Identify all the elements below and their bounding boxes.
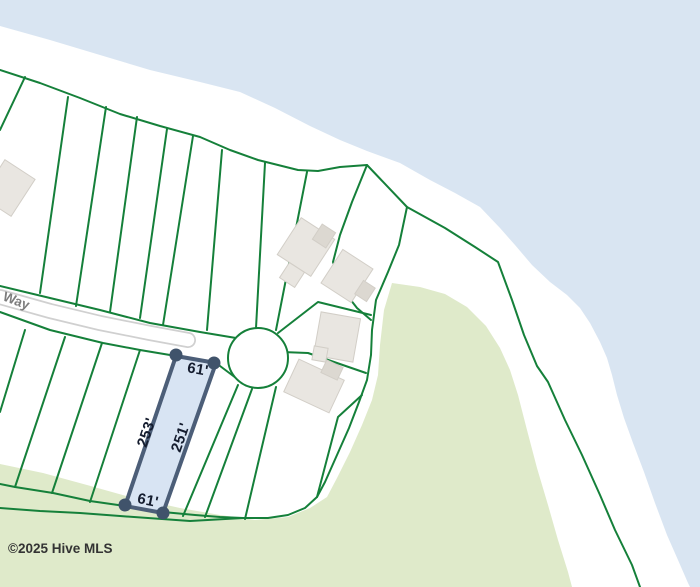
lot-line: [15, 337, 65, 487]
lot-corner-marker: [157, 507, 170, 520]
building-footprint: [0, 160, 35, 217]
lot-line: [0, 330, 25, 412]
lot-line: [110, 117, 137, 312]
lot-line: [140, 129, 167, 318]
lot-line: [76, 107, 106, 306]
lot-line: [0, 77, 25, 130]
lot-line: [256, 163, 265, 328]
lot-line: [52, 343, 102, 493]
cul-de-sac-circle: [228, 328, 288, 388]
copyright-attribution: ©2025 Hive MLS: [8, 541, 113, 556]
lot-dimension-top: 61': [186, 359, 210, 379]
lot-line: [207, 150, 222, 330]
map-canvas[interactable]: Way 61' 61' 253' 251' ©2025 Hive MLS: [0, 0, 700, 587]
lot-line: [40, 97, 68, 293]
building-footprint: [312, 346, 328, 362]
lot-corner-marker: [119, 499, 132, 512]
lot-line: [163, 136, 193, 325]
lot-line: [245, 387, 276, 519]
road-layer: [0, 297, 288, 388]
lot-corner-marker: [170, 349, 183, 362]
plat-map[interactable]: Way 61' 61' 253' 251' ©2025 Hive MLS: [0, 0, 700, 587]
